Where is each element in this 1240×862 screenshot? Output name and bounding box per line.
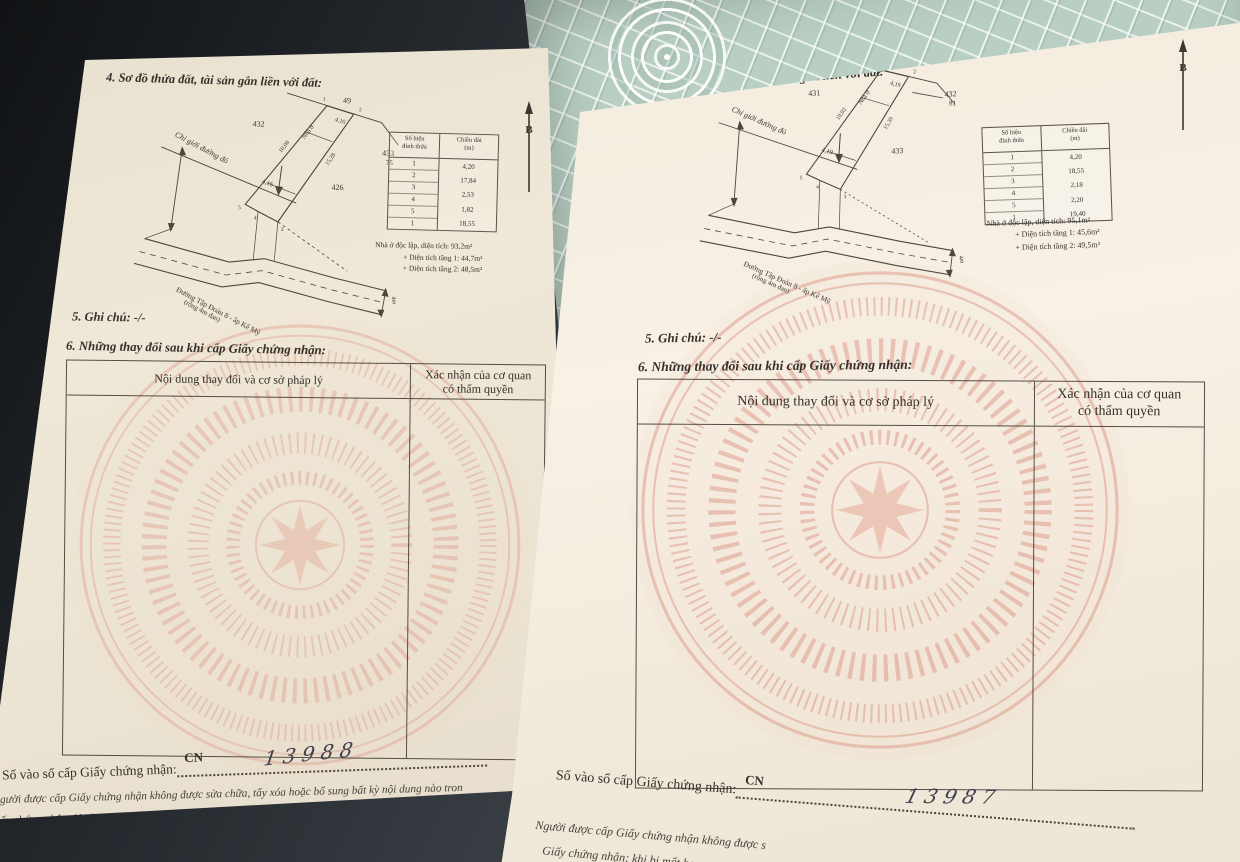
changes-col2-header: Xác nhận của cơ quan có thẩm quyền xyxy=(1034,382,1204,427)
legal-note-line2: Giấy chứng nhận; khi bị mất ho xyxy=(542,843,696,862)
vertex-table: Số hiệu đỉnh thửa 1 2 3 4 5 1 Chiều dài … xyxy=(981,123,1112,225)
length-column: Chiều dài (m) 4,20 17,84 2,53 1,82 18,55 xyxy=(438,134,498,231)
length-cell: 18,55 xyxy=(1042,166,1110,176)
legal-note-line1: gười được cấp Giấy chứng nhận không được… xyxy=(0,782,463,806)
lot-number-left: 431 xyxy=(808,88,820,98)
vertex-4: 4 xyxy=(816,184,819,190)
lot-number-mid: 433 xyxy=(891,146,903,156)
certificate-page-left: 4. Sơ đồ thửa đất, tài sản gắn liền với … xyxy=(0,40,600,840)
changes-col1-body xyxy=(636,425,1034,790)
ledger-number-handwritten: 13987 xyxy=(903,784,1004,808)
lot-number-right: 432 xyxy=(944,89,956,99)
header-line: có thẩm quyền xyxy=(443,381,514,396)
length-cell: 2,53 xyxy=(439,190,497,200)
changes-table-body xyxy=(63,396,545,760)
vertex-column: Số hiệu đỉnh thửa 1 2 3 4 5 1 xyxy=(388,133,441,230)
edge-length-top: 4,16 xyxy=(334,117,346,126)
length-cell: 17,84 xyxy=(439,176,497,186)
house-info-line: + Diện tích tầng 2: 48,5m² xyxy=(375,262,483,275)
length-cell: 2,20 xyxy=(1043,194,1111,204)
vertex-5: 5 xyxy=(238,205,241,211)
ledger-cn-prefix: CN xyxy=(184,749,203,766)
certificate-page-right: 4. Sơ đồ thửa đất, tài sản gắn liền với … xyxy=(500,0,1240,862)
vertex-3: 3 xyxy=(844,194,847,200)
section5-note: 5. Ghi chú: -/- xyxy=(72,309,146,325)
lot-number-mid: 426 xyxy=(331,183,343,192)
north-label: B xyxy=(525,124,533,136)
header-line: (m) xyxy=(1041,134,1109,145)
vertex-3: 3 xyxy=(281,227,284,233)
lot-number-right-sub: 81 xyxy=(949,99,957,107)
header-line: (m) xyxy=(440,144,498,154)
length-column: Chiều dài (m) 4,20 18,55 2,18 2,20 19,40 xyxy=(1041,124,1112,222)
vertex-column-header: Số hiệu đỉnh thửa xyxy=(982,126,1040,153)
vertex-1: 1 xyxy=(323,97,326,103)
vertex-2: 2 xyxy=(359,107,362,113)
vertex-table: Số hiệu đỉnh thửa 1 2 3 4 5 1 Chiều dài … xyxy=(387,132,500,233)
changes-table-header: Nội dung thay đổi và cơ sở pháp lý Xác n… xyxy=(67,361,545,401)
red-boundary-line xyxy=(719,115,859,208)
header-line: đỉnh thửa xyxy=(390,143,439,153)
vertex-2: 2 xyxy=(913,69,916,75)
header-line: Xác nhận của cơ quan xyxy=(425,367,531,382)
length-cell: 18,55 xyxy=(438,219,496,229)
house-label: Nhà ở xyxy=(300,123,316,140)
section6-title: 6. Những thay đổi sau khi cấp Giấy chứng… xyxy=(638,357,912,375)
lot-number-top: 49 xyxy=(343,96,351,105)
edge-cross-dim: 4,16 xyxy=(261,178,275,189)
road-name: Đường Tập Đoàn 8 - ấp Kế Mỹ xyxy=(742,259,832,306)
changes-col1-header: Nội dung thay đổi và cơ sở pháp lý xyxy=(67,361,412,399)
house-area-info: Nhà ở độc lập, diện tích: 93,2m² + Diện … xyxy=(375,239,483,276)
changes-table: Nội dung thay đổi và cơ sở pháp lý Xác n… xyxy=(635,379,1205,792)
changes-table-header: Nội dung thay đổi và cơ sở pháp lý Xác n… xyxy=(638,380,1204,428)
road-width-label: 4m xyxy=(390,296,397,305)
changes-col1-body xyxy=(63,396,411,759)
length-cell: 4,20 xyxy=(1042,152,1110,162)
length-cell: 1,82 xyxy=(438,205,496,215)
lot-number-left: 432 xyxy=(253,119,265,128)
legal-note-line2: ấy chứng nhận; khi bị mất hoặc hư hỏng G… xyxy=(0,803,457,827)
section5-note: 5. Ghi chú: -/- xyxy=(645,329,722,346)
edge-cross-dim: 4,19 xyxy=(821,147,834,157)
photo-background: 4. Sơ đồ thửa đất, tài sản gắn liền với … xyxy=(0,0,1240,862)
road-width-label: 4m xyxy=(957,255,965,264)
house-info-line: Nhà ở độc lập, diện tích: 93,2m² xyxy=(375,239,483,252)
north-arrow-icon: B xyxy=(518,100,540,195)
length-column-header: Chiều dài (m) xyxy=(440,134,498,161)
vertex-column: Số hiệu đỉnh thửa 1 2 3 4 5 1 xyxy=(982,126,1044,224)
length-column-header: Chiều dài (m) xyxy=(1041,124,1109,151)
vertex-5: 5 xyxy=(800,175,803,181)
length-cell: 2,18 xyxy=(1043,180,1111,190)
edge-length-top: 4,19 xyxy=(889,81,901,89)
changes-table: Nội dung thay đổi và cơ sở pháp lý Xác n… xyxy=(62,359,546,760)
header-line: Xác nhận của cơ quan xyxy=(1057,387,1181,404)
changes-col2-body xyxy=(1032,427,1203,791)
road-name: Đường Tập Đoàn 8 - ấp Kế Mỹ xyxy=(175,285,263,337)
header-line: có thẩm quyền xyxy=(1078,404,1161,421)
changes-col2-header: Xác nhận của cơ quan có thẩm quyền xyxy=(411,364,545,399)
vertex-column-header: Số hiệu đỉnh thửa xyxy=(390,133,440,159)
length-cell: 4,20 xyxy=(440,162,498,172)
length-values: 4,20 17,84 2,53 1,82 18,55 xyxy=(438,159,498,231)
vertex-4: 4 xyxy=(254,215,257,221)
house-dim-right: 15,28 xyxy=(325,152,338,167)
changes-col1-header: Nội dung thay đổi và cơ sở pháp lý xyxy=(638,380,1035,426)
road-band xyxy=(698,192,957,290)
north-label: B xyxy=(1179,62,1187,74)
changes-table-body xyxy=(636,425,1204,791)
road-band xyxy=(133,228,389,317)
length-values: 4,20 18,55 2,18 2,20 19,40 xyxy=(1042,149,1112,222)
house-dim-right: 15,39 xyxy=(883,116,895,131)
header-line: đỉnh thửa xyxy=(983,137,1041,147)
north-arrow-icon: B xyxy=(1172,38,1194,133)
ledger-cn-prefix: CN xyxy=(745,772,765,789)
house-label: Nhà ở xyxy=(857,89,872,106)
vertex-cell: 1 xyxy=(388,218,437,230)
house-area-info: Nhà ở độc lập, diện tích: 95,1m² + Diện … xyxy=(986,214,1100,255)
